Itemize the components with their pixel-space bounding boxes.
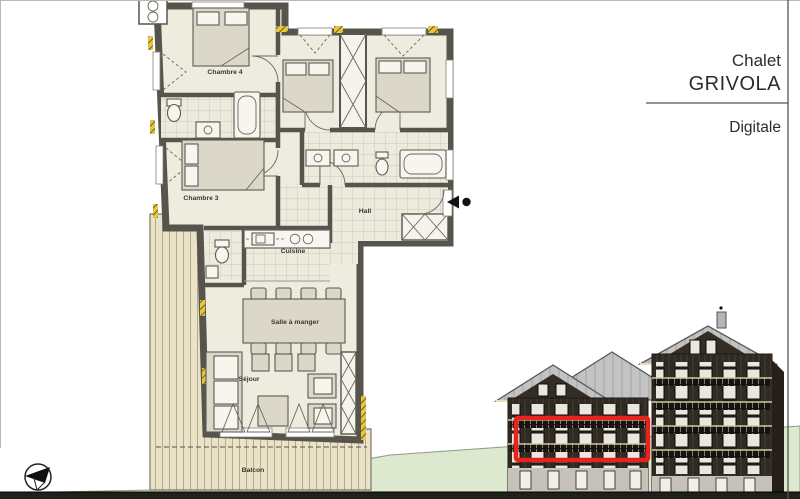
entrance-dot-icon <box>462 198 470 206</box>
north-arrow-compass <box>25 464 51 490</box>
room-label-chambre-3: Chambre 3 <box>183 195 218 202</box>
gable-window <box>706 340 716 354</box>
room-label-hall: Hall <box>359 208 372 215</box>
gable-window <box>556 384 566 396</box>
room-label-salle-a-manger: Salle à manger <box>271 319 319 326</box>
room-label-chambre-4: Chambre 4 <box>207 69 242 76</box>
chalet-name: GRIVOLA <box>689 73 782 95</box>
right-side-wing <box>772 360 784 492</box>
room-label-balcon: Balcon <box>242 467 265 474</box>
antenna-dot <box>719 306 722 309</box>
building-elevation <box>496 306 784 492</box>
chalet-label: Chalet <box>732 51 781 70</box>
gable-window <box>690 340 700 354</box>
room-label-cuisine: Cuisine <box>281 248 306 255</box>
ground-strip <box>0 492 800 499</box>
gable-window <box>538 384 548 396</box>
apartment-name: Digitale <box>729 119 781 136</box>
room-label-sejour: Séjour <box>238 376 260 383</box>
architectural-sheet: Balcon <box>0 0 800 499</box>
chimney <box>717 312 726 328</box>
